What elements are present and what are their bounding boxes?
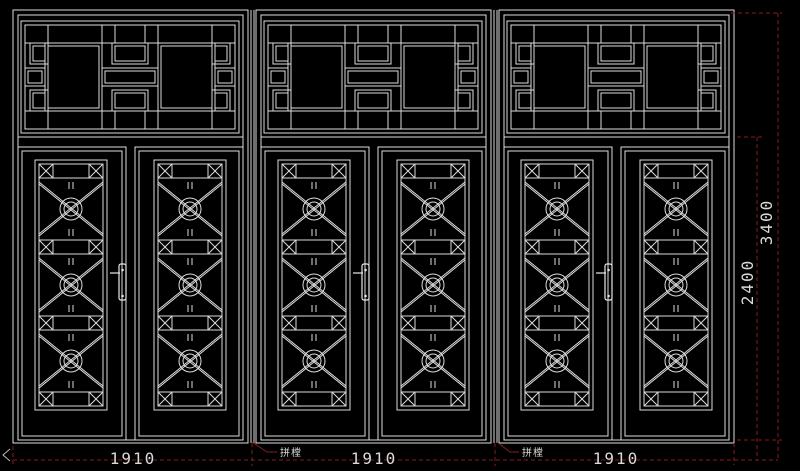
cad-drawing-viewport: 1910 1910 1910 2400 3400 拼樘 拼樘 bbox=[0, 0, 800, 471]
dim-label-height-3400: 3400 bbox=[757, 199, 776, 246]
door-unit-2 bbox=[256, 10, 491, 443]
mullion-2 bbox=[494, 10, 497, 443]
mullion-1 bbox=[251, 10, 254, 443]
door-unit-3 bbox=[499, 10, 734, 443]
dim-arrow-left bbox=[3, 449, 10, 461]
door-unit-1 bbox=[13, 10, 248, 443]
mullion-label-2: 拼樘 bbox=[522, 446, 544, 459]
cad-canvas: 1910 1910 1910 2400 3400 拼樘 拼樘 bbox=[0, 0, 800, 471]
dim-label-width-3: 1910 bbox=[593, 449, 640, 468]
dim-label-height-2400: 2400 bbox=[738, 259, 757, 306]
dim-label-width-1: 1910 bbox=[110, 449, 157, 468]
mullion-label-1: 拼樘 bbox=[280, 446, 302, 459]
dim-label-width-2: 1910 bbox=[351, 449, 398, 468]
